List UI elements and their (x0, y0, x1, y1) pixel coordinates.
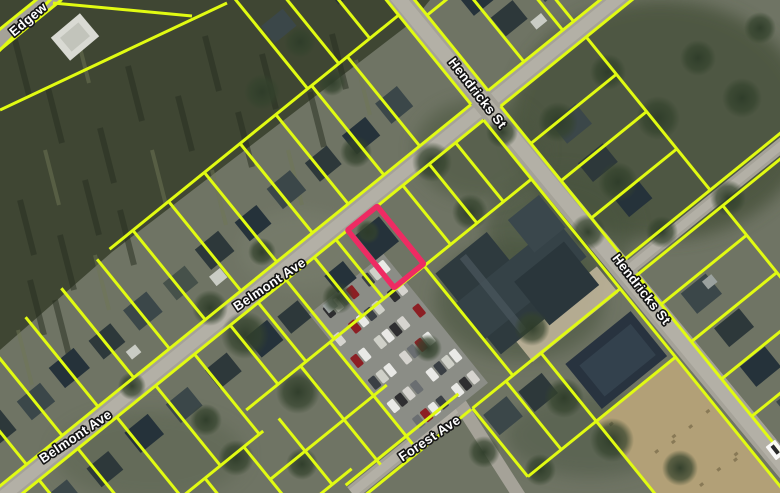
map-viewport[interactable]: Hendricks St Hendricks St Belmont Ave Be… (0, 0, 780, 493)
map-canvas[interactable]: Hendricks St Hendricks St Belmont Ave Be… (0, 0, 780, 493)
